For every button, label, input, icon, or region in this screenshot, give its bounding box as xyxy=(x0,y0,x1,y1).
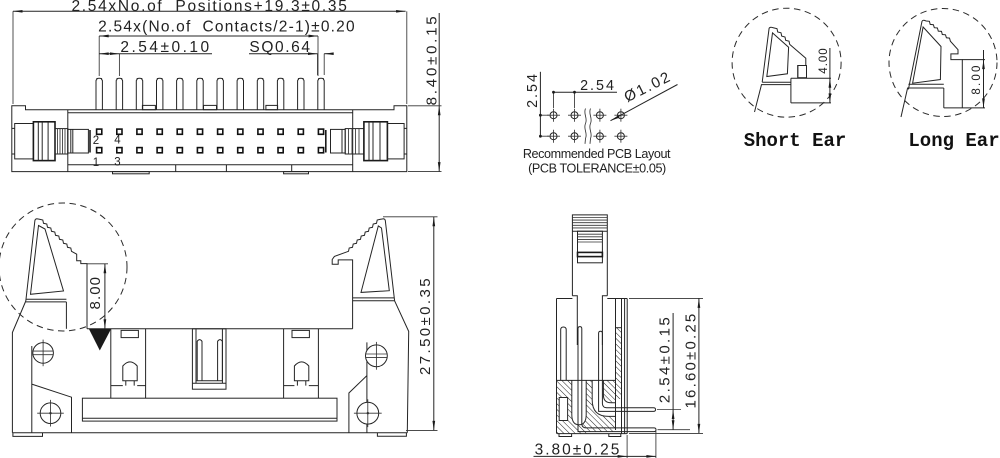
svg-text:1: 1 xyxy=(93,157,99,169)
svg-text:4: 4 xyxy=(114,135,121,147)
svg-text:2.54: 2.54 xyxy=(580,78,616,94)
svg-text:2.54±0.10: 2.54±0.10 xyxy=(120,39,211,56)
svg-text:8.00: 8.00 xyxy=(971,63,983,94)
svg-text:Long Ear: Long Ear xyxy=(908,130,999,152)
svg-text:Recommended PCB Layout: Recommended PCB Layout xyxy=(523,147,671,161)
svg-text:3: 3 xyxy=(114,157,120,169)
svg-text:8.40±0.15: 8.40±0.15 xyxy=(424,14,441,106)
svg-text:2: 2 xyxy=(93,135,99,147)
svg-text:Short Ear: Short Ear xyxy=(744,130,847,152)
svg-text:2.54: 2.54 xyxy=(525,72,541,108)
svg-text:2.54xNo.of Positions+19.3±0.3: 2.54xNo.of Positions+19.3±0.35 xyxy=(71,0,348,15)
svg-text:8.00: 8.00 xyxy=(87,276,104,310)
svg-text:SQ0.64: SQ0.64 xyxy=(249,39,311,56)
svg-text:4.00: 4.00 xyxy=(818,47,830,73)
svg-text:3.80±0.25: 3.80±0.25 xyxy=(535,442,622,458)
svg-text:(PCB TOLERANCE±0.05): (PCB TOLERANCE±0.05) xyxy=(528,161,666,175)
svg-text:27.50±0.35: 27.50±0.35 xyxy=(417,276,434,375)
svg-text:2.54±0.15: 2.54±0.15 xyxy=(657,315,674,403)
svg-text:16.60±0.25: 16.60±0.25 xyxy=(683,312,700,409)
svg-text:2.54x(No.of Contacts/2-1)±0.2: 2.54x(No.of Contacts/2-1)±0.20 xyxy=(98,19,356,36)
